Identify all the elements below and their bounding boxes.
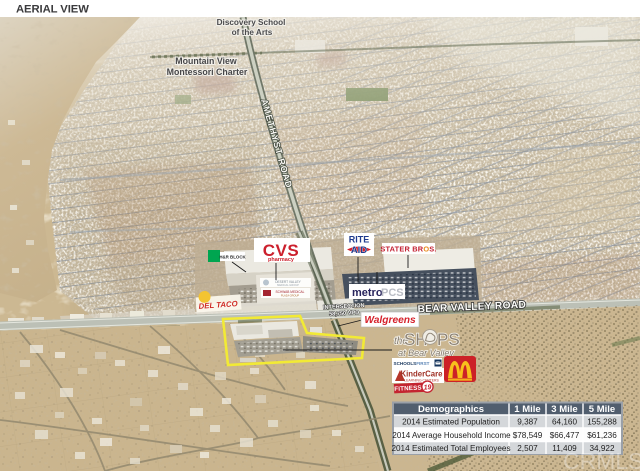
svg-text:9,387: 9,387 [517,418,538,427]
svg-text:H&R BLOCK: H&R BLOCK [219,255,246,260]
svg-text:CRMLS: CRMLS [563,448,640,471]
svg-text:2014 Average Household Income: 2014 Average Household Income [392,431,511,440]
svg-text:Montessori Charter: Montessori Charter [167,67,248,77]
svg-text:FITNESS: FITNESS [394,384,422,392]
svg-text:AERIAL VIEW: AERIAL VIEW [16,4,89,16]
svg-text:pharmacy: pharmacy [268,257,295,263]
svg-text:RITE: RITE [349,235,370,245]
svg-text:155,288: 155,288 [587,418,617,427]
svg-text:PLAZA GROUP: PLAZA GROUP [281,293,300,297]
svg-text:AID: AID [351,245,368,256]
svg-text:SCHOOLSFIRST: SCHOOLSFIRST [394,361,430,366]
svg-text:2014 Estimated Population: 2014 Estimated Population [402,418,500,427]
svg-text:LEARNING CENTERS: LEARNING CENTERS [404,379,439,383]
svg-text:MEDICAL GROUP: MEDICAL GROUP [277,283,299,287]
svg-text:$66,477: $66,477 [550,431,580,440]
svg-text:metro: metro [352,287,383,299]
svg-text:Demographics: Demographics [418,404,484,415]
svg-text:Mountain View: Mountain View [175,56,237,66]
svg-text:$78,549: $78,549 [513,431,543,440]
svg-text:19: 19 [423,384,431,391]
svg-text:PCS: PCS [381,287,404,299]
svg-text:$61,236: $61,236 [587,431,617,440]
svg-text:PS: PS [437,330,460,349]
svg-text:of the Arts: of the Arts [232,28,273,37]
svg-text:2,507: 2,507 [517,444,538,453]
svg-text:SCHWAB MEDICAL: SCHWAB MEDICAL [276,290,305,294]
svg-text:64,160: 64,160 [552,418,577,427]
svg-text:KinderCare: KinderCare [400,370,443,379]
svg-text:5 Mile: 5 Mile [589,404,615,415]
svg-text:3 Mile: 3 Mile [551,404,577,415]
svg-text:Discovery School: Discovery School [217,18,286,27]
svg-text:2014 Estimated Total Employees: 2014 Estimated Total Employees [391,444,510,453]
svg-text:1 Mile: 1 Mile [514,404,540,415]
svg-text:STATER BROS.: STATER BROS. [380,245,436,254]
svg-text:Walgreens: Walgreens [364,315,416,326]
